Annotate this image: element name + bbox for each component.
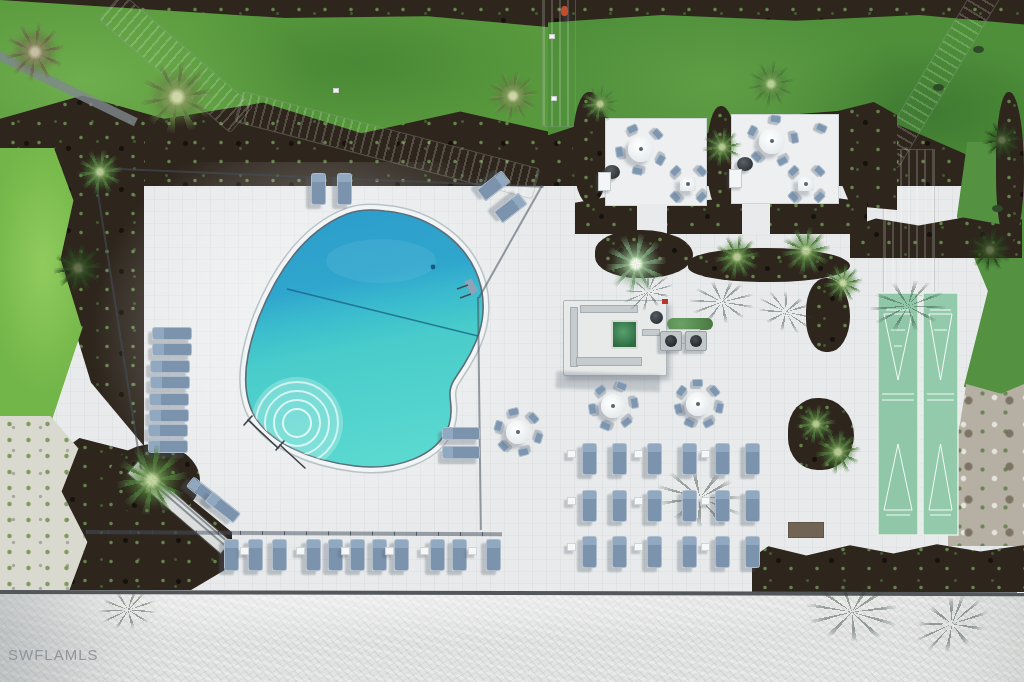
patio-chair — [692, 379, 703, 387]
shrub — [973, 46, 984, 53]
sun-lounger — [148, 424, 188, 437]
side-table — [385, 547, 394, 555]
side-table — [701, 450, 710, 458]
table-top — [628, 136, 654, 162]
patio-chair — [813, 190, 826, 203]
side-table — [634, 497, 643, 505]
patio-chair — [533, 432, 544, 445]
patio-chair — [708, 384, 721, 398]
sun-lounger — [152, 327, 192, 340]
patio-chair — [789, 132, 799, 144]
sun-lounger — [682, 536, 697, 568]
table-top — [601, 394, 625, 418]
palm-tree — [815, 429, 861, 475]
side-table — [567, 497, 576, 505]
palm-shadow — [747, 283, 826, 341]
sun-lounger — [682, 443, 697, 475]
sun-lounger — [745, 536, 760, 568]
fence-line — [93, 168, 142, 470]
sun-lounger — [647, 443, 662, 475]
palm-tree — [487, 70, 539, 122]
shrub — [933, 84, 944, 91]
palm-tree — [702, 127, 742, 167]
fence-line — [477, 297, 481, 530]
sun-lounger — [612, 490, 627, 522]
side-table — [567, 450, 576, 458]
palm-tree — [140, 60, 214, 134]
ground-mat — [788, 522, 824, 538]
patio-chair — [787, 165, 800, 178]
sun-lounger — [337, 173, 352, 205]
side-table — [701, 543, 710, 551]
patio-chair — [675, 384, 688, 398]
palm-tree — [714, 234, 760, 280]
palm-tree — [53, 243, 103, 293]
palm-tree — [982, 120, 1022, 160]
pedestrian — [561, 6, 568, 16]
patio-chair — [683, 417, 696, 429]
sun-lounger — [272, 539, 287, 571]
sun-lounger — [248, 539, 263, 571]
patio-chair — [493, 419, 504, 432]
sun-lounger — [745, 443, 760, 475]
shrub — [992, 205, 1003, 212]
patio-chair — [517, 447, 530, 457]
patio-chair — [631, 166, 643, 176]
patio-chair — [714, 402, 724, 414]
square-dining-set — [780, 158, 840, 218]
sun-lounger — [715, 536, 730, 568]
palm-shadow — [913, 588, 991, 659]
service-cart — [729, 169, 742, 188]
sun-lounger — [372, 539, 387, 571]
sun-lounger — [150, 376, 190, 389]
patio-chair — [747, 124, 759, 137]
table-top — [759, 128, 785, 154]
umbrella-table-set — [583, 376, 643, 436]
patio-chair — [813, 165, 826, 178]
patio-chair — [625, 123, 638, 135]
table-top — [798, 177, 814, 191]
table-top — [686, 392, 710, 416]
patio-chair — [508, 406, 521, 416]
sun-lounger — [149, 409, 189, 422]
side-table — [341, 547, 350, 555]
patio-chair — [594, 383, 608, 396]
sun-lounger — [205, 491, 241, 523]
grill-station — [685, 331, 707, 351]
path-object — [551, 96, 557, 101]
patio-chair — [673, 403, 683, 416]
palm-tree — [605, 233, 667, 295]
patio-chair — [695, 165, 708, 178]
palm-shadow — [679, 274, 764, 329]
sun-lounger — [152, 343, 192, 356]
palm-tree — [781, 226, 831, 276]
patio-chair — [669, 165, 682, 178]
sun-lounger — [442, 427, 480, 440]
patio-chair — [701, 417, 714, 429]
sun-lounger — [486, 539, 501, 571]
sun-lounger — [442, 446, 480, 459]
side-table — [468, 547, 477, 555]
patio-chair — [615, 146, 624, 158]
umbrella-table-set — [668, 374, 728, 434]
side-table — [567, 543, 576, 551]
patio-chair — [496, 440, 509, 454]
side-table — [634, 543, 643, 551]
palm-tree — [968, 228, 1012, 272]
palm-tree — [116, 444, 188, 516]
red-object — [662, 299, 668, 304]
sun-lounger — [647, 536, 662, 568]
square-dining-set — [662, 158, 722, 218]
sun-lounger — [612, 443, 627, 475]
grill-station — [660, 331, 682, 351]
fence-line — [86, 530, 502, 536]
patio-chair — [669, 190, 682, 203]
sun-lounger — [430, 539, 445, 571]
table-top — [680, 177, 696, 191]
sun-lounger — [311, 173, 326, 205]
palm-tree — [581, 85, 619, 123]
service-cart — [598, 172, 611, 191]
side-table — [634, 450, 643, 458]
sun-lounger — [328, 539, 343, 571]
patio-chair — [599, 420, 612, 432]
sun-lounger — [350, 539, 365, 571]
umbrella-table-set — [488, 402, 548, 462]
sun-lounger — [224, 539, 239, 571]
palm-tree — [823, 263, 863, 303]
palm-shadow — [790, 570, 914, 654]
side-table — [296, 547, 305, 555]
aerial-photo-pool-amenity: SWFLAMLS — [0, 0, 1024, 682]
patio-chair — [527, 411, 540, 425]
palm-tree — [77, 149, 123, 195]
sun-lounger — [150, 360, 190, 373]
patio-chair — [815, 122, 828, 134]
sun-lounger — [582, 536, 597, 568]
watermark: SWFLAMLS — [8, 646, 99, 663]
patio-chair — [588, 403, 597, 415]
palm-shadow — [859, 276, 957, 337]
sun-lounger — [715, 443, 730, 475]
patio-chair — [695, 190, 708, 203]
sun-lounger — [452, 539, 467, 571]
sun-lounger — [476, 170, 510, 202]
scene-objects — [0, 0, 1024, 682]
path-object — [333, 88, 339, 93]
patio-chair — [787, 190, 800, 203]
side-table — [240, 547, 249, 555]
side-table — [701, 497, 710, 505]
sun-lounger — [715, 490, 730, 522]
side-table — [420, 547, 429, 555]
sun-lounger — [394, 539, 409, 571]
patio-chair — [770, 114, 782, 124]
sun-lounger — [647, 490, 662, 522]
patio-chair — [651, 127, 664, 141]
patio-chair — [630, 397, 639, 409]
sun-lounger — [745, 490, 760, 522]
sun-lounger — [306, 539, 321, 571]
palm-tree — [747, 60, 795, 108]
sun-lounger — [582, 443, 597, 475]
patio-chair — [615, 381, 628, 393]
patio-chair — [620, 416, 634, 429]
sun-lounger — [612, 536, 627, 568]
sun-lounger — [682, 490, 697, 522]
sun-lounger — [149, 393, 189, 406]
path-object — [549, 34, 555, 39]
palm-tree — [5, 22, 65, 82]
sun-lounger — [582, 490, 597, 522]
table-top — [506, 420, 530, 444]
